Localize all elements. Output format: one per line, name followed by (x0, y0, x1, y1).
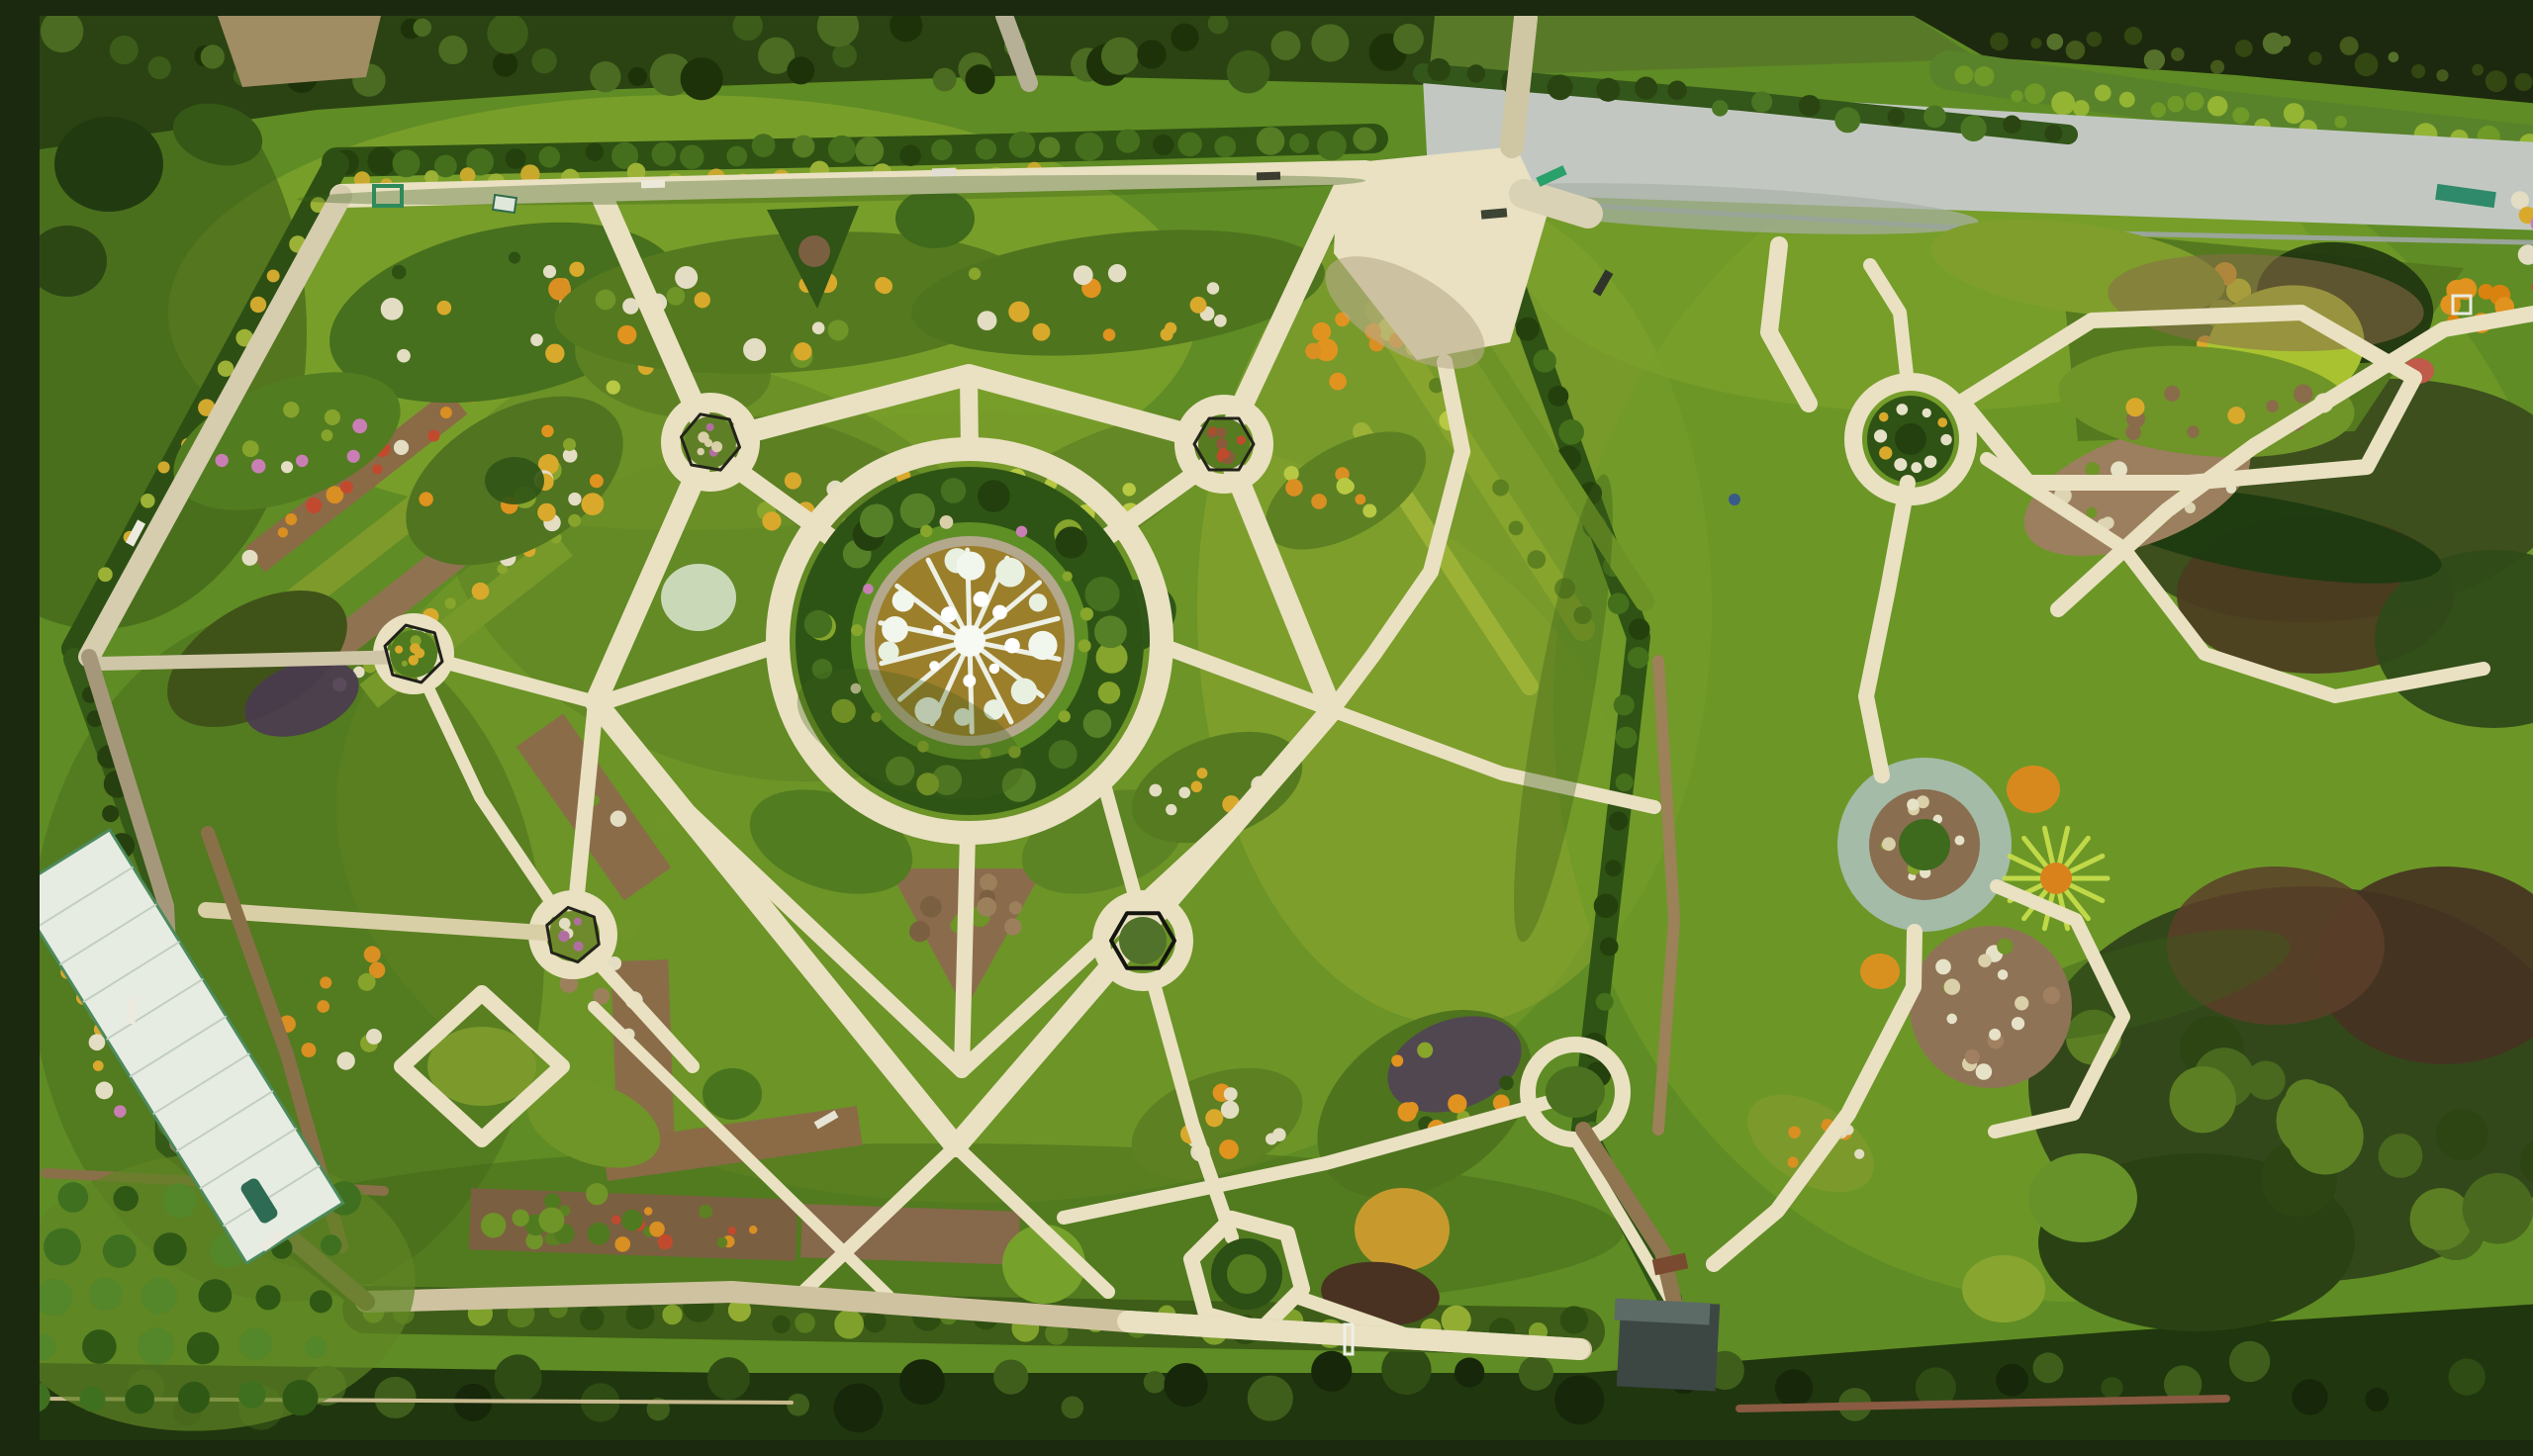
se-hex-bed (1546, 1066, 1605, 1118)
bench-north-1 (641, 180, 665, 189)
info-sign (493, 195, 516, 213)
link-fountain-south (962, 833, 968, 1070)
plaza-road-merge (1524, 194, 1588, 214)
aerial-garden-photo (40, 16, 2533, 1440)
bench-north-2 (932, 168, 956, 177)
plaza-north-stub (1512, 18, 1526, 146)
silver-ring-center (1899, 819, 1950, 870)
roundabout-center-shrub (1895, 423, 1926, 455)
fountain-center-burst (954, 625, 985, 657)
link-corner-westhex (97, 657, 414, 664)
tree-yellow-se (1962, 1255, 2045, 1322)
visitor-person (1729, 494, 1740, 505)
orange-topiary-ball-1 (2007, 766, 2060, 813)
arrow-topiary-center (798, 235, 830, 267)
yucca-base (2040, 863, 2072, 894)
silver-bush (661, 564, 736, 631)
bench-north-3 (1257, 172, 1280, 181)
aerial-garden-photo-canvas (40, 16, 2533, 1440)
tree-bright-se (2028, 1153, 2137, 1242)
link-apex-fountain (969, 377, 970, 451)
hexagon-junction-bed (1119, 917, 1167, 964)
tree-parterre-4 (485, 457, 544, 504)
golden-shrub-se (1355, 1188, 1450, 1271)
top-dirt-track (218, 16, 381, 87)
conifer-tree-a (54, 117, 163, 212)
orange-topiary-ball-2 (1860, 954, 1900, 989)
tree-parterre-3 (703, 1068, 762, 1120)
